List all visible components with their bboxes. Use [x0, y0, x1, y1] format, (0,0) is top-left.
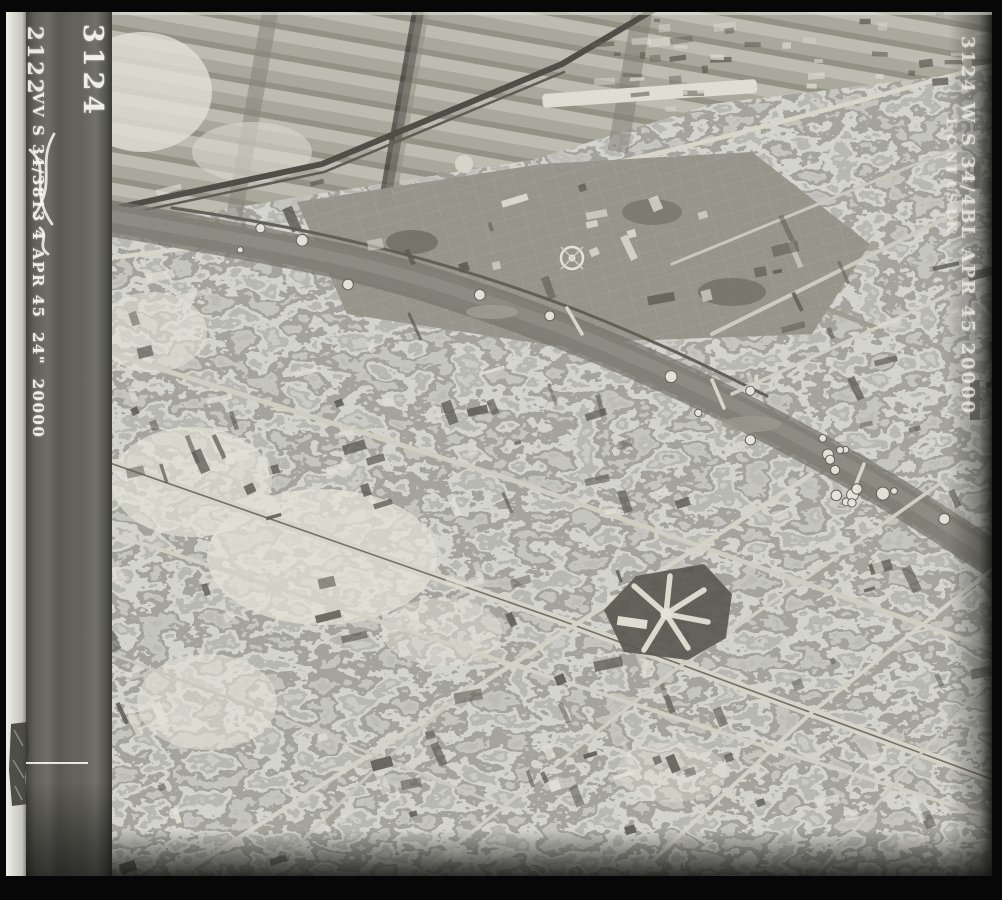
- aerial-photo-svg: [112, 12, 992, 876]
- security-caption: E C NT US UK: [943, 118, 958, 233]
- aerial-photo: [112, 12, 992, 876]
- film-band-fade: [26, 780, 112, 876]
- adjacent-frame-number: 2122: [23, 26, 48, 96]
- right-frame-caption: 3124 W S 34/4BL APR 45 20000: [957, 36, 978, 415]
- frame-number-left: 3124: [77, 24, 108, 119]
- scratch-line: [26, 762, 88, 764]
- handwriting-scribble-annotation: [22, 128, 66, 258]
- film-grain-overlay: [112, 12, 992, 876]
- scanned-aerial-photo-frame: 3124 2122 VV S 34/3813 4 APR 45 24" 2000…: [0, 0, 1002, 900]
